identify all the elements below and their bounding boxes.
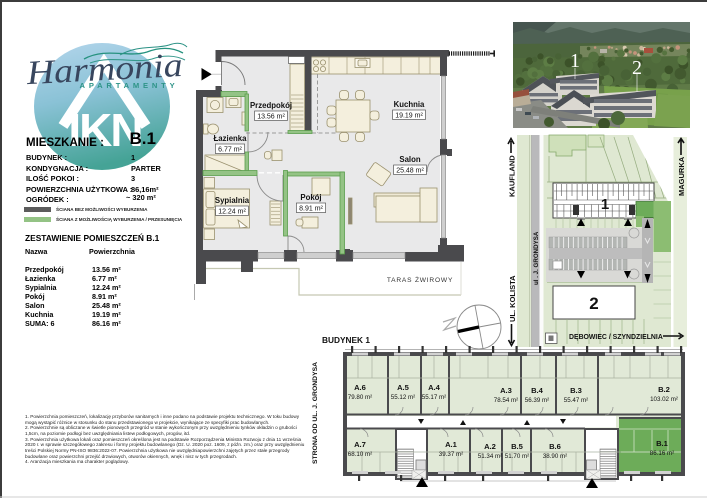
svg-text:13.56 m²: 13.56 m² — [257, 114, 285, 121]
svg-text:Kuchnia: Kuchnia — [394, 100, 425, 109]
svg-text:B.6: B.6 — [549, 442, 561, 451]
svg-text:STRONA OD UL. J. GRONDYSA: STRONA OD UL. J. GRONDYSA — [312, 362, 319, 464]
svg-text:51.70 m²: 51.70 m² — [505, 453, 529, 460]
svg-text:19.19 m²: 19.19 m² — [395, 113, 423, 120]
svg-text:A.5: A.5 — [397, 383, 410, 392]
svg-text:51.34 m²: 51.34 m² — [478, 453, 502, 460]
svg-text:38.90 m²: 38.90 m² — [543, 453, 567, 460]
svg-text:56.39 m²: 56.39 m² — [525, 397, 549, 404]
svg-text:39.37 m²: 39.37 m² — [439, 451, 463, 458]
svg-text:2: 2 — [632, 57, 642, 79]
svg-text:55.17 m²: 55.17 m² — [422, 394, 446, 401]
svg-text:8.91 m²: 8.91 m² — [299, 206, 323, 213]
svg-text:Łazienka: Łazienka — [214, 134, 248, 143]
svg-text:6.77 m²: 6.77 m² — [218, 147, 242, 154]
svg-text:78.54 m²: 78.54 m² — [494, 397, 518, 404]
svg-text:B.3: B.3 — [570, 386, 582, 395]
svg-text:UL. KOLISTA: UL. KOLISTA — [508, 275, 517, 322]
svg-text:1: 1 — [601, 196, 609, 213]
svg-text:A.6: A.6 — [354, 383, 366, 392]
svg-text:MAGURKA: MAGURKA — [677, 156, 686, 196]
svg-text:B.5: B.5 — [511, 442, 524, 451]
svg-text:Pokój: Pokój — [300, 193, 321, 202]
svg-text:25.48 m²: 25.48 m² — [396, 168, 424, 175]
svg-text:A.3: A.3 — [500, 386, 512, 395]
svg-text:86.16 m²: 86.16 m² — [650, 450, 674, 457]
svg-text:Sypialnia: Sypialnia — [215, 196, 250, 205]
svg-text:68.10 m²: 68.10 m² — [348, 451, 372, 458]
svg-text:1: 1 — [570, 50, 580, 72]
svg-text:A.1: A.1 — [445, 440, 458, 449]
svg-text:2: 2 — [589, 294, 598, 313]
svg-text:DĘBOWIEC / SZYNDZIELNIA: DĘBOWIEC / SZYNDZIELNIA — [569, 334, 663, 341]
svg-text:55.12 m²: 55.12 m² — [391, 394, 415, 401]
svg-text:A.4: A.4 — [428, 383, 441, 392]
svg-text:Salon: Salon — [399, 155, 420, 164]
svg-text:B.1: B.1 — [656, 439, 669, 448]
svg-text:B.4: B.4 — [531, 386, 544, 395]
svg-text:103.02 m²: 103.02 m² — [650, 396, 678, 403]
svg-text:55.47 m²: 55.47 m² — [564, 397, 588, 404]
svg-text:12.24 m²: 12.24 m² — [218, 209, 246, 216]
svg-text:ul . J. GRONDYSA: ul . J. GRONDYSA — [533, 231, 540, 285]
svg-text:KAUFLAND: KAUFLAND — [508, 155, 517, 197]
svg-text:APARTAMENTY: APARTAMENTY — [80, 81, 179, 90]
svg-text:A.7: A.7 — [354, 440, 366, 449]
svg-text:B.2: B.2 — [658, 385, 670, 394]
svg-text:A.2: A.2 — [484, 442, 496, 451]
svg-text:79.80 m²: 79.80 m² — [348, 394, 372, 401]
svg-text:Przedpokój: Przedpokój — [250, 101, 292, 110]
svg-text:TARAS ŻWIROWY: TARAS ŻWIROWY — [387, 275, 453, 284]
svg-text:BUDYNEK 1: BUDYNEK 1 — [322, 335, 370, 345]
